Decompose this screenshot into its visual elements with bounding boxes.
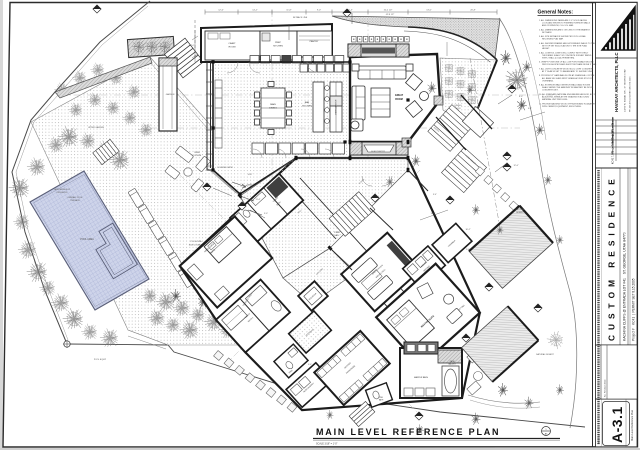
svg-text:HAVIGAY ARCHITECTS, PLLC: HAVIGAY ARCHITECTS, PLLC (614, 52, 619, 112)
svg-text:NATURAL DESERT: NATURAL DESERT (536, 353, 555, 356)
svg-text:TERRACE: TERRACE (70, 199, 80, 202)
svg-text:GALLERY: GALLERY (448, 363, 457, 366)
svg-text:PREP: PREP (275, 42, 281, 44)
svg-text:PARA: PARA (194, 151, 200, 154)
svg-text:LOUNGE: LOUNGE (193, 155, 202, 157)
svg-text:KC41: KC41 (611, 157, 615, 164)
svg-text:14795 W. INDIAN CIR - ST GEORG: 14795 W. INDIAN CIR - ST GEORGE UTAH (624, 69, 627, 112)
svg-text:OVERALL POOL: OVERALL POOL (67, 196, 83, 199)
svg-text:9'-0": 9'-0" (317, 10, 321, 12)
svg-text:MAIN: MAIN (270, 103, 276, 106)
svg-text:PH 435.676.2211 FAX 435.676.2: PH 435.676.2211 FAX 435.676.2215 (629, 76, 632, 112)
svg-text:GUEST ENTRY: GUEST ENTRY (371, 151, 386, 153)
svg-text:THICKENED SLAB 4" W/ CONCRETE: THICKENED SLAB 4" W/ CONCRETE FOR ANY RA… (542, 54, 592, 57)
svg-text:REFRIGERATOR: REFRIGERATOR (335, 99, 338, 114)
svg-text:22'-0": 22'-0" (190, 45, 195, 47)
svg-text:A-3.1: A-3.1 (609, 406, 625, 443)
svg-text:ROOM: ROOM (395, 98, 402, 101)
svg-text:HEIGHT.: HEIGHT. (542, 48, 550, 50)
svg-text:14'-0": 14'-0" (248, 174, 253, 176)
svg-text:10. ALL STANDARD NATIONAL ENG: 10. ALL STANDARD NATIONAL ENGINEERED ANC… (539, 93, 596, 96)
svg-text:PANTRY: PANTRY (310, 40, 319, 43)
svg-text:BAR: BAR (305, 101, 310, 104)
svg-text:C U S T O M R E S I D E N C: C U S T O M R E S I D E N C E (607, 178, 617, 341)
svg-text:General Notes:: General Notes: (538, 10, 574, 16)
svg-text:13'-0": 13'-0" (426, 10, 432, 12)
svg-text:16'-2": 16'-2" (465, 229, 470, 231)
svg-text:12'-0": 12'-0" (431, 213, 436, 215)
svg-text:MATERIAL UNIT PER LEVEL.: MATERIAL UNIT PER LEVEL. (542, 98, 569, 101)
svg-text:CONCRETE UNIT.: CONCRETE UNIT. (542, 90, 559, 92)
svg-text:9'-0": 9'-0" (264, 213, 268, 215)
svg-text:12'-6": 12'-6" (218, 10, 224, 12)
svg-text:11'-8": 11'-8" (286, 10, 291, 12)
svg-text:Project # KC41 | PERMIT S: Project # KC41 | PERMIT SET 8.15.2005 (632, 278, 636, 341)
svg-text:LAWN AREA SOD: LAWN AREA SOD (54, 188, 71, 191)
svg-text:GARDEN: GARDEN (166, 93, 175, 96)
svg-text:OVERHANG.: OVERHANG. (542, 79, 554, 82)
svg-text:ROOM: ROOM (229, 46, 236, 48)
svg-text:COVERED PATIO: COVERED PATIO (217, 166, 234, 169)
svg-text:RECORDED PLAT MAP.: RECORDED PLAT MAP. (542, 38, 564, 41)
svg-text:MAIN LEVEL REFERENCE PLAN: MAIN LEVEL REFERENCE PLAN (316, 427, 500, 437)
svg-text:4. ALL SHOWER FRAMES HELD AT: 4. ALL SHOWER FRAMES HELD AT FINISHED WA… (539, 42, 596, 45)
svg-text:14'-2": 14'-2" (252, 10, 258, 12)
svg-text:8. PROVIDE 1/2" HARDIBAG SLOP: 8. PROVIDE 1/2" HARDIBAG SLOPE AT GRADES… (539, 74, 595, 77)
svg-text:PER ROUGH SPECS AND SHORT SET: PER ROUGH SPECS AND SHORT SET BASE NICHE… (542, 63, 597, 66)
svg-text:IRRIGATED: IRRIGATED (57, 191, 68, 194)
svg-text:STAIR: STAIR (334, 231, 340, 234)
svg-text:UPPER GARDEN: UPPER GARDEN (88, 126, 105, 129)
svg-text:SCALE 3/16" = 1'-0": SCALE 3/16" = 1'-0" (316, 443, 338, 446)
svg-text:9'-0": 9'-0" (466, 249, 470, 251)
svg-text:No. Revision: No. Revision Date (604, 379, 607, 397)
svg-text:POOL/SPA: POOL/SPA (191, 240, 202, 243)
svg-text:AT 2" SLAB W/ SET TO BASEBOARD: AT 2" SLAB W/ SET TO BASEBOARD TO SHOWN … (542, 70, 593, 73)
svg-text:8'-0": 8'-0" (519, 96, 523, 98)
svg-text:MASTER BATH: MASTER BATH (414, 376, 429, 379)
svg-text:Sheet No.: Sheet No. (598, 434, 601, 444)
svg-text:KITCHEN: KITCHEN (302, 105, 312, 107)
svg-text:HALL: HALL (334, 234, 340, 237)
svg-text:DINING: DINING (269, 107, 277, 109)
svg-text:WITH CEMENT, EQUIPMENT, SMOOTH: WITH CEMENT, EQUIPMENT, SMOOTHING. (542, 106, 582, 108)
svg-text:16'-2 1/2": 16'-2 1/2" (384, 10, 393, 12)
svg-text:KACHINA CLIFFS @ ENTRADA LOT #: KACHINA CLIFFS @ ENTRADA LOT #41 ST. GEO… (623, 232, 627, 341)
svg-text:3'-4": 3'-4" (433, 194, 437, 196)
svg-text:WITH 2 WALL (LOCAL PERIMETER).: WITH 2 WALL (LOCAL PERIMETER). (542, 56, 575, 59)
svg-text:SETBACK LINE: SETBACK LINE (293, 16, 308, 19)
svg-text:DINING: DINING (455, 105, 462, 107)
svg-text:8'-0": 8'-0" (528, 108, 532, 110)
svg-text:1. ALL DIMENSIONS TAKEN ARE 1: 1. ALL DIMENSIONS TAKEN ARE 1'-0" SOLID … (539, 19, 587, 22)
svg-text:NATURAL: NATURAL (515, 208, 525, 211)
svg-text:CRAFT: CRAFT (228, 42, 236, 45)
svg-text:POOL AREA: POOL AREA (80, 238, 94, 241)
svg-text:Project No.: Project No. (611, 139, 615, 153)
svg-text:12'-6": 12'-6" (513, 165, 518, 167)
svg-text:6'-2 1/2": 6'-2 1/2" (246, 185, 254, 187)
svg-text:POOL EQUIP: POOL EQUIP (94, 359, 107, 361)
svg-text:SET BACK.: SET BACK. (542, 31, 553, 34)
svg-text:SHALL WATER: THE MASONRY IN MA: SHALL WATER: THE MASONRY IN MASONRY BE W… (542, 86, 594, 89)
svg-text:6. VERIFY POSITIONS OF ALL LO: 6. VERIFY POSITIONS OF ALL LOW POINT SWA… (539, 61, 594, 64)
svg-text:Main Level Reference Plan: Main Level Reference Plan (630, 409, 634, 441)
svg-text:PALM: PALM (450, 360, 455, 363)
svg-text:KITCHEN: KITCHEN (273, 45, 283, 47)
svg-text:7. ALL LIGHT CONCRETE WOOD SI: 7. ALL LIGHT CONCRETE WOOD SILLS, LIGHT … (539, 67, 594, 70)
svg-text:42'-8 1/2": 42'-8 1/2" (386, 14, 395, 16)
svg-text:11'-4": 11'-4" (256, 199, 261, 201)
svg-text:3. ALL SITE SETBACKS SHOWN PE: 3. ALL SITE SETBACKS SHOWN PER CIVIL & F… (539, 35, 587, 38)
svg-text:20'-8": 20'-8" (470, 10, 476, 12)
svg-text:GREAT: GREAT (395, 94, 404, 97)
svg-text:DESERT: DESERT (516, 212, 525, 214)
svg-text:6'-0": 6'-0" (308, 364, 312, 366)
svg-text:AND OR WINDOW, CLG. U.N. MAX.: AND OR WINDOW, CLG. U.N. MAX. (542, 24, 574, 27)
